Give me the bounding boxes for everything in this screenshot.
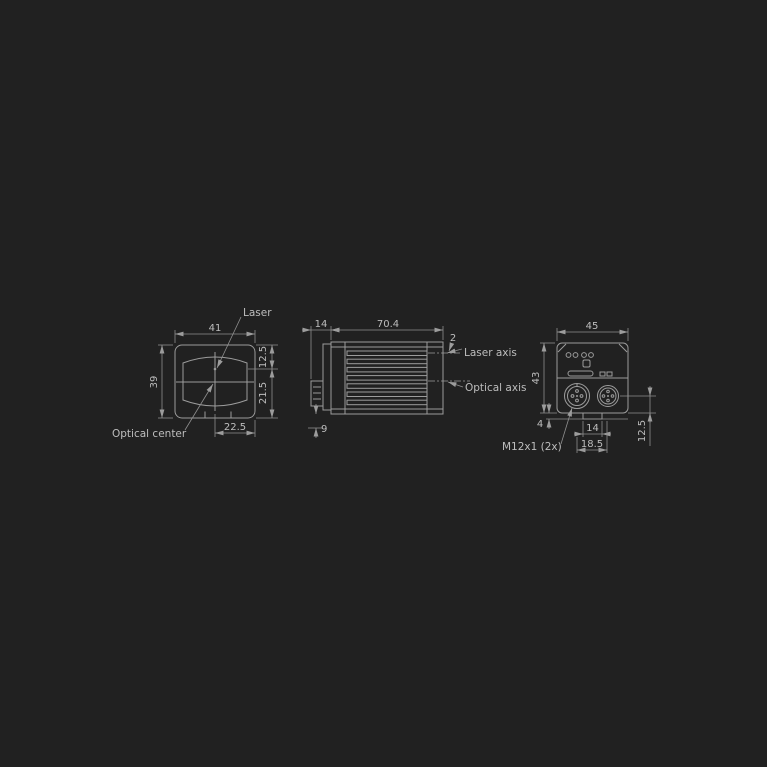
dim-front-height: 39 bbox=[149, 345, 173, 418]
teach-button bbox=[583, 360, 590, 367]
cooling-fins bbox=[347, 351, 427, 405]
dim-rear-tab-width: 14 bbox=[574, 421, 611, 437]
laser-point-marker bbox=[214, 368, 217, 371]
led-indicators bbox=[566, 353, 593, 358]
laser-axis-label: Laser axis bbox=[464, 347, 517, 359]
dim-side-front-depth: 14 bbox=[302, 319, 340, 379]
dim-top-to-laser-value: 12.5 bbox=[258, 346, 269, 368]
dim-front-width: 41 bbox=[175, 323, 255, 343]
laser-axis-callout: Laser axis bbox=[428, 347, 517, 359]
m12-connector-left bbox=[565, 384, 590, 409]
dim-rear-height: 43 bbox=[531, 343, 557, 413]
dim-laser-offset: 2 bbox=[449, 333, 456, 351]
front-view: 41 39 12.5 21.5 22.5 L bbox=[112, 307, 278, 440]
optical-center-callout: Optical center bbox=[112, 384, 213, 440]
dim-front-bottom-offset-value: 22.5 bbox=[224, 422, 246, 433]
rear-chamfer-right bbox=[619, 344, 627, 352]
dim-rear-width: 45 bbox=[557, 321, 628, 341]
dim-rear-foot: 4 bbox=[537, 403, 549, 430]
rear-bottom-tab bbox=[583, 413, 602, 419]
m12-connector-right bbox=[598, 386, 619, 407]
connector-callout: M12x1 (2x) bbox=[502, 408, 572, 453]
dim-rear-connector-to-bottom: 12.5 bbox=[620, 386, 656, 446]
dim-front-height-value: 39 bbox=[149, 376, 160, 389]
dim-laser-offset-value: 2 bbox=[450, 333, 456, 344]
optical-axis-label: Optical axis bbox=[465, 382, 526, 394]
connector-label: M12x1 (2x) bbox=[502, 441, 562, 453]
side-body-outline bbox=[331, 342, 443, 414]
dim-rear-height-value: 43 bbox=[531, 372, 542, 385]
dim-rear-tab-width-value: 14 bbox=[586, 423, 599, 434]
laser-label: Laser bbox=[243, 307, 272, 319]
rear-chamfer-left bbox=[558, 344, 566, 352]
dim-side-front-depth-value: 14 bbox=[315, 319, 328, 330]
dimension-drawing: 41 39 12.5 21.5 22.5 L bbox=[0, 0, 767, 767]
rear-pad-right bbox=[607, 372, 612, 376]
dim-rear-connector-to-bottom-value: 12.5 bbox=[637, 420, 648, 442]
dim-rear-width-value: 45 bbox=[586, 321, 599, 332]
dim-side-body-length: 70.4 bbox=[331, 319, 443, 340]
side-front-plate bbox=[323, 344, 331, 410]
dim-side-bottom-depth: 9 bbox=[308, 404, 327, 438]
dim-side-body-length-value: 70.4 bbox=[377, 319, 399, 330]
dim-side-bottom-depth-value: 9 bbox=[321, 424, 327, 435]
dim-laser-to-bottom-value: 21.5 bbox=[258, 382, 269, 404]
optical-center-label: Optical center bbox=[112, 428, 187, 440]
dim-rear-connector-spacing-value: 18.5 bbox=[581, 439, 603, 450]
technical-drawing-canvas: 41 39 12.5 21.5 22.5 L bbox=[0, 0, 767, 767]
dim-rear-foot-value: 4 bbox=[537, 419, 543, 430]
rear-pad-left bbox=[600, 372, 605, 376]
rear-slot bbox=[568, 371, 593, 376]
side-view: 14 70.4 Laser axis 2 Optical axis bbox=[302, 319, 526, 438]
dim-front-width-value: 41 bbox=[209, 323, 222, 334]
